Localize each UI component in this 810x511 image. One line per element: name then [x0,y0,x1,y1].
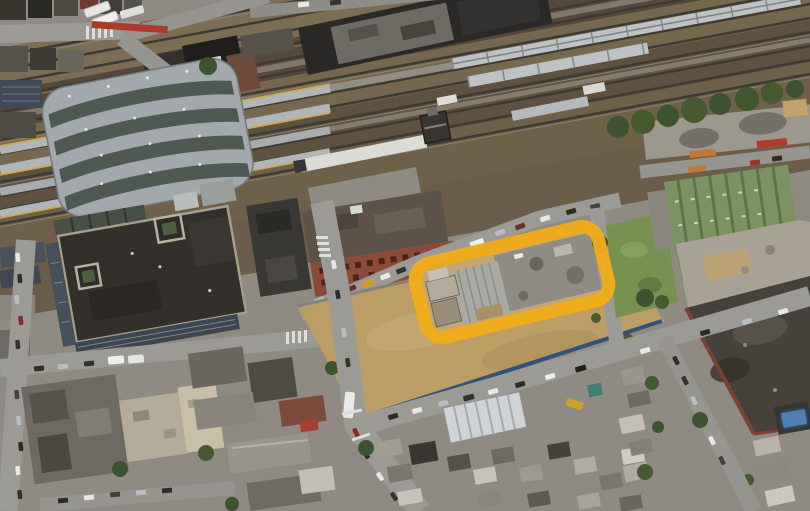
tree [225,497,239,511]
yellow-excavator [565,398,584,411]
tree [692,412,708,428]
tree [112,461,128,477]
tree [637,464,653,480]
aerial-map-viewport[interactable] [0,0,810,511]
aerial-map-canvas[interactable] [0,0,810,511]
top-street [0,30,140,34]
tree [652,421,664,433]
tree [358,440,374,456]
tree [199,57,217,75]
pool-blue-tarp [780,408,809,429]
bottom-edge-road [40,488,235,505]
pallet-stacks [782,99,808,117]
tree [198,445,214,461]
tree [645,376,659,390]
teal-tarp [587,383,603,397]
